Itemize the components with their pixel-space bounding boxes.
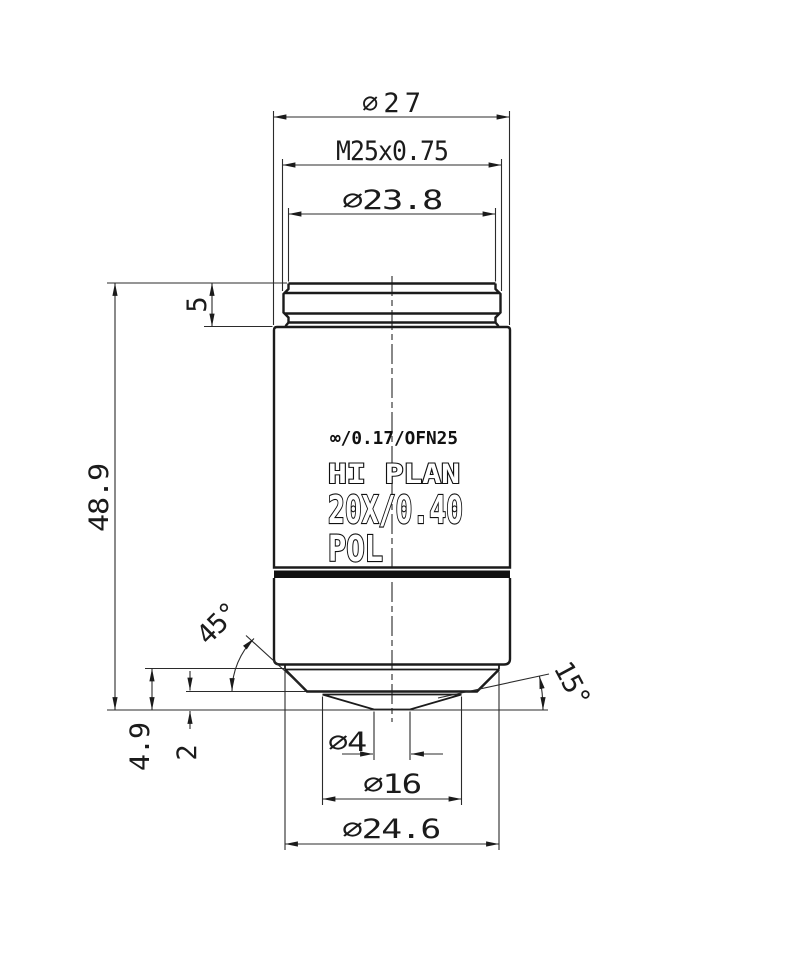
engraving-pol-marking: POL [328,529,383,570]
engraving-series-name: HI PLAN [328,459,460,490]
dim-front-lens-diameter: ∅4 [328,727,366,758]
engraving-magnification: 20X/0.40 [328,488,463,532]
ext-mount-thread [283,159,502,291]
dim-mount-thread: M25x0.75 [336,136,448,167]
objective-technical-drawing: ∅27 M25x0.75 ∅23.8 5 48.9 4.9 2 ∅4 ∅16 ∅… [0,0,800,974]
dim-chamfer-angle: 45° [191,597,245,651]
dim-nose-length: 4.9 [125,723,156,771]
dim-thread-length: 5 [182,297,213,312]
ext-collar-diameter [289,208,496,282]
engraving-block: ∞/0.17/OFN25 HI PLAN 20X/0.40 POL [328,428,463,570]
dim-front-face-diameter: ∅16 [363,769,421,800]
dim-outer-diameter: ∅27 [362,88,420,119]
dim-overall-length: 48.9 [84,464,115,532]
knurl-band [274,571,510,579]
dim-cone-angle: 15° [547,657,596,712]
dim-collar-diameter: ∅23.8 [342,185,442,216]
technical-drawing-page: ∅27 M25x0.75 ∅23.8 5 48.9 4.9 2 ∅4 ∅16 ∅… [0,0,800,974]
dim-arc-cone-angle [539,676,543,710]
engraving-optics-spec: ∞/0.17/OFN25 [330,428,458,449]
dim-front-recess: 2 [172,745,203,760]
dim-nose-base-diameter: ∅24.6 [342,814,440,845]
ext-cone-angle-line [438,674,549,698]
dim-arc-chamfer-angle [232,639,254,692]
